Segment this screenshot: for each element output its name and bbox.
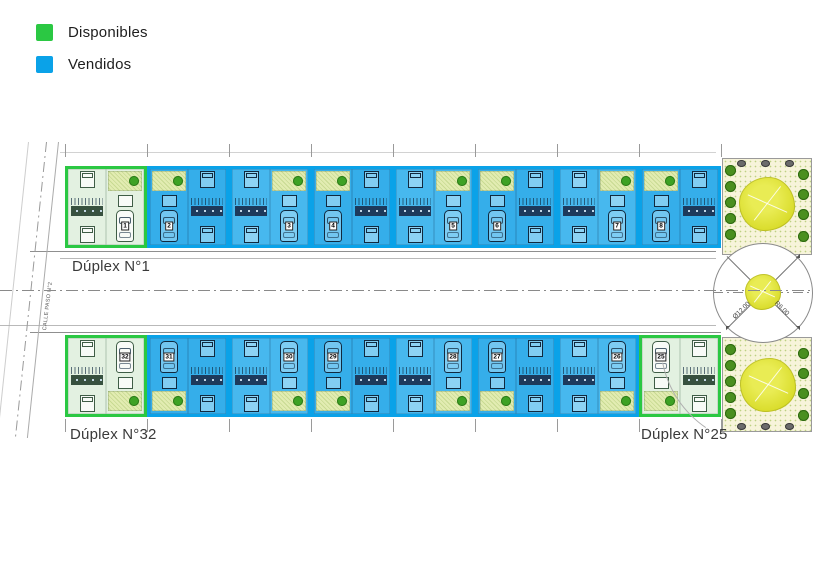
tree-icon bbox=[621, 176, 631, 186]
stairs-icon bbox=[519, 367, 551, 374]
bed-icon bbox=[364, 171, 379, 188]
boundary-tick bbox=[229, 419, 230, 432]
tree-icon bbox=[337, 176, 347, 186]
duplex-unit-6: 6 bbox=[475, 166, 557, 248]
bedroom-cell bbox=[680, 169, 718, 245]
stairs-icon bbox=[191, 198, 223, 205]
bathroom-block bbox=[191, 206, 223, 216]
duplex-unit-3: 3 bbox=[229, 166, 311, 248]
unit-number: 1 bbox=[121, 222, 129, 231]
road-centerline bbox=[0, 290, 813, 291]
tree-icon bbox=[457, 176, 467, 186]
bush-icon bbox=[798, 209, 809, 220]
bed-icon bbox=[200, 395, 215, 412]
bedroom-cell bbox=[188, 338, 226, 414]
patio-area bbox=[316, 391, 350, 411]
unit-number: 25 bbox=[655, 353, 666, 362]
dining-table-icon bbox=[610, 195, 625, 207]
patio-area bbox=[600, 171, 634, 191]
garage-cell: 1 bbox=[106, 169, 144, 245]
bed-icon bbox=[244, 340, 259, 357]
boundary-tick bbox=[65, 144, 66, 157]
bathroom-block bbox=[235, 206, 267, 216]
stairs-icon bbox=[71, 198, 103, 205]
bush-icon bbox=[725, 360, 736, 371]
bathroom-block bbox=[519, 206, 551, 216]
stairs-icon bbox=[235, 367, 267, 374]
duplex-unit-1: 1 bbox=[65, 166, 147, 248]
bedroom-cell bbox=[560, 169, 598, 245]
bathroom-block bbox=[519, 375, 551, 385]
dining-table-icon bbox=[162, 377, 177, 389]
boundary-tick bbox=[147, 144, 148, 157]
survey-line bbox=[60, 258, 716, 259]
boundary-tick bbox=[311, 419, 312, 432]
stairs-icon bbox=[563, 367, 595, 374]
bathroom-block bbox=[399, 375, 431, 385]
bed-icon bbox=[80, 226, 95, 243]
shrub-icon bbox=[761, 160, 770, 167]
car-icon: 6 bbox=[488, 210, 506, 242]
legend-label-available: Disponibles bbox=[68, 24, 148, 41]
car-icon: 4 bbox=[324, 210, 342, 242]
bed-icon bbox=[528, 340, 543, 357]
dining-table-icon bbox=[654, 195, 669, 207]
bathroom-block bbox=[563, 375, 595, 385]
bedroom-cell bbox=[352, 169, 390, 245]
bed-icon bbox=[408, 171, 423, 188]
bed-icon bbox=[692, 171, 707, 188]
car-icon: 3 bbox=[280, 210, 298, 242]
sold-swatch bbox=[36, 56, 53, 73]
garage-cell: 4 bbox=[314, 169, 352, 245]
duplex-unit-28: 28 bbox=[393, 335, 475, 417]
duplex-unit-5: 5 bbox=[393, 166, 475, 248]
legend-label-sold: Vendidos bbox=[68, 56, 131, 73]
unit-number: 8 bbox=[657, 222, 665, 231]
bedroom-cell bbox=[68, 169, 106, 245]
bed-icon bbox=[364, 226, 379, 243]
bed-icon bbox=[80, 395, 95, 412]
bush-icon bbox=[725, 229, 736, 240]
duplex-unit-29: 29 bbox=[311, 335, 393, 417]
patio-area bbox=[152, 391, 186, 411]
patio-area bbox=[436, 391, 470, 411]
unit-number: 30 bbox=[283, 353, 294, 362]
stairs-icon bbox=[71, 367, 103, 374]
garage-cell: 32 bbox=[106, 338, 144, 414]
duplex-1-label: Dúplex N°1 bbox=[72, 258, 150, 275]
unit-number: 27 bbox=[491, 353, 502, 362]
bed-icon bbox=[244, 395, 259, 412]
bed-icon bbox=[408, 340, 423, 357]
duplex-unit-32: 32 bbox=[65, 335, 147, 417]
bush-icon bbox=[725, 344, 736, 355]
patio-area bbox=[316, 171, 350, 191]
bedroom-cell bbox=[516, 169, 554, 245]
garage-cell: 3 bbox=[270, 169, 308, 245]
boundary-tick bbox=[639, 144, 640, 157]
stairs-icon bbox=[683, 198, 715, 205]
bed-icon bbox=[80, 340, 95, 357]
dining-table-icon bbox=[118, 377, 133, 389]
garage-cell: 2 bbox=[150, 169, 188, 245]
boundary-tick bbox=[639, 419, 640, 432]
tree-icon bbox=[173, 396, 183, 406]
bed-icon bbox=[572, 171, 587, 188]
bathroom-block bbox=[563, 206, 595, 216]
unit-number: 28 bbox=[447, 353, 458, 362]
duplex-unit-26: 26 bbox=[557, 335, 639, 417]
car-icon: 28 bbox=[444, 341, 462, 373]
unit-number: 6 bbox=[493, 222, 501, 231]
bush-icon bbox=[798, 348, 809, 359]
bush-icon bbox=[798, 231, 809, 242]
garage-cell: 26 bbox=[598, 338, 636, 414]
bush-icon bbox=[725, 165, 736, 176]
car-icon: 5 bbox=[444, 210, 462, 242]
legend: Disponibles Vendidos bbox=[36, 24, 148, 88]
bush-icon bbox=[725, 376, 736, 387]
bathroom-block bbox=[355, 206, 387, 216]
duplex-25-label: Dúplex N°25 bbox=[641, 426, 728, 443]
bed-icon bbox=[528, 171, 543, 188]
dining-table-icon bbox=[162, 195, 177, 207]
tree-icon bbox=[501, 396, 511, 406]
tree-icon bbox=[337, 396, 347, 406]
boundary-tick bbox=[311, 144, 312, 157]
survey-line bbox=[60, 152, 716, 153]
duplex-unit-7: 7 bbox=[557, 166, 639, 248]
tree-icon bbox=[293, 176, 303, 186]
patio-area bbox=[480, 171, 514, 191]
duplex-unit-27: 27 bbox=[475, 335, 557, 417]
shrub-icon bbox=[737, 423, 746, 430]
shrub-icon bbox=[785, 423, 794, 430]
bedroom-cell bbox=[516, 338, 554, 414]
garage-cell: 6 bbox=[478, 169, 516, 245]
bed-icon bbox=[364, 340, 379, 357]
boundary-tick bbox=[475, 144, 476, 157]
bedroom-cell bbox=[352, 338, 390, 414]
car-icon: 26 bbox=[608, 341, 626, 373]
patio-area bbox=[272, 171, 306, 191]
bathroom-block bbox=[235, 375, 267, 385]
bed-icon bbox=[692, 340, 707, 357]
garage-cell: 27 bbox=[478, 338, 516, 414]
garden-top bbox=[722, 158, 812, 255]
dining-table-icon bbox=[490, 377, 505, 389]
duplex-unit-2: 2 bbox=[147, 166, 229, 248]
bed-icon bbox=[572, 226, 587, 243]
patio-area bbox=[436, 171, 470, 191]
survey-line bbox=[0, 325, 716, 326]
boundary-tick bbox=[393, 144, 394, 157]
bathroom-block bbox=[683, 206, 715, 216]
stairs-icon bbox=[399, 198, 431, 205]
car-icon: 27 bbox=[488, 341, 506, 373]
site-plan-canvas: Disponibles Vendidos CALLE PASO N°2 Ø12. bbox=[0, 0, 814, 576]
patio-area bbox=[272, 391, 306, 411]
boundary-tick bbox=[557, 419, 558, 432]
tree-canopy bbox=[740, 358, 796, 412]
bush-icon bbox=[798, 169, 809, 180]
bush-icon bbox=[725, 181, 736, 192]
shrub-icon bbox=[761, 423, 770, 430]
bed-icon bbox=[408, 395, 423, 412]
stairs-icon bbox=[235, 198, 267, 205]
bed-icon bbox=[200, 171, 215, 188]
bush-icon bbox=[725, 197, 736, 208]
boundary-tick bbox=[557, 144, 558, 157]
tree-icon bbox=[457, 396, 467, 406]
stairs-icon bbox=[563, 198, 595, 205]
dining-table-icon bbox=[118, 195, 133, 207]
bathroom-block bbox=[355, 375, 387, 385]
patio-area bbox=[480, 391, 514, 411]
car-icon: 29 bbox=[324, 341, 342, 373]
bed-icon bbox=[200, 340, 215, 357]
dining-table-icon bbox=[446, 195, 461, 207]
stairs-icon bbox=[191, 367, 223, 374]
stairs-icon bbox=[519, 198, 551, 205]
bedroom-cell bbox=[68, 338, 106, 414]
patio-area bbox=[108, 391, 142, 411]
patio-area bbox=[644, 171, 678, 191]
bedroom-cell bbox=[396, 338, 434, 414]
boundary-tick bbox=[393, 419, 394, 432]
bedroom-cell bbox=[560, 338, 598, 414]
available-swatch bbox=[36, 24, 53, 41]
stairs-icon bbox=[355, 198, 387, 205]
garden-bottom bbox=[722, 337, 812, 432]
bush-icon bbox=[798, 388, 809, 399]
tree-icon bbox=[173, 176, 183, 186]
car-icon: 31 bbox=[160, 341, 178, 373]
garage-cell: 7 bbox=[598, 169, 636, 245]
tree-icon bbox=[621, 396, 631, 406]
legend-item-available: Disponibles bbox=[36, 24, 148, 41]
car-icon: 30 bbox=[280, 341, 298, 373]
unit-number: 2 bbox=[165, 222, 173, 231]
bedroom-cell bbox=[188, 169, 226, 245]
sidewalk-edge-top bbox=[30, 251, 716, 252]
dining-table-icon bbox=[446, 377, 461, 389]
boundary-tick bbox=[721, 144, 722, 157]
bed-icon bbox=[572, 395, 587, 412]
bush-icon bbox=[725, 392, 736, 403]
shrub-icon bbox=[785, 160, 794, 167]
shrub-icon bbox=[737, 160, 746, 167]
unit-number: 7 bbox=[613, 222, 621, 231]
bedroom-cell bbox=[396, 169, 434, 245]
tree-icon bbox=[501, 176, 511, 186]
bathroom-block bbox=[71, 375, 103, 385]
bed-icon bbox=[408, 226, 423, 243]
garage-cell: 5 bbox=[434, 169, 472, 245]
roundabout: Ø12.00 R6.00 bbox=[713, 243, 813, 343]
bed-icon bbox=[528, 226, 543, 243]
bush-icon bbox=[725, 408, 736, 419]
bed-icon bbox=[528, 395, 543, 412]
duplex-unit-30: 30 bbox=[229, 335, 311, 417]
duplex-unit-8: 8 bbox=[639, 166, 721, 248]
car-icon: 1 bbox=[116, 210, 134, 242]
bathroom-block bbox=[399, 206, 431, 216]
bush-icon bbox=[798, 368, 809, 379]
duplex-unit-31: 31 bbox=[147, 335, 229, 417]
unit-number: 32 bbox=[119, 353, 130, 362]
car-icon: 32 bbox=[116, 341, 134, 373]
bedroom-cell bbox=[232, 338, 270, 414]
bed-icon bbox=[244, 226, 259, 243]
unit-number: 26 bbox=[611, 353, 622, 362]
boundary-tick bbox=[65, 419, 66, 432]
patio-area bbox=[152, 171, 186, 191]
tree-icon bbox=[665, 176, 675, 186]
dining-table-icon bbox=[326, 195, 341, 207]
garage-cell: 31 bbox=[150, 338, 188, 414]
duplex-row-top: 12345678 bbox=[65, 166, 721, 248]
unit-number: 5 bbox=[449, 222, 457, 231]
boundary-tick bbox=[475, 419, 476, 432]
dining-table-icon bbox=[282, 377, 297, 389]
duplex-32-label: Dúplex N°32 bbox=[70, 426, 157, 443]
car-icon: 7 bbox=[608, 210, 626, 242]
dining-table-icon bbox=[610, 377, 625, 389]
tree-icon bbox=[129, 396, 139, 406]
dining-table-icon bbox=[326, 377, 341, 389]
patio-area bbox=[600, 391, 634, 411]
bathroom-block bbox=[191, 375, 223, 385]
boundary-tick bbox=[229, 144, 230, 157]
bedroom-cell bbox=[232, 169, 270, 245]
bush-icon bbox=[798, 410, 809, 421]
patio-area bbox=[644, 391, 678, 411]
stairs-icon bbox=[355, 367, 387, 374]
dining-table-icon bbox=[490, 195, 505, 207]
bed-icon bbox=[364, 395, 379, 412]
stairs-icon bbox=[399, 367, 431, 374]
unit-number: 31 bbox=[163, 353, 174, 362]
bed-icon bbox=[572, 340, 587, 357]
tree-icon bbox=[665, 396, 675, 406]
bush-icon bbox=[798, 189, 809, 200]
sidewalk-edge-bottom bbox=[30, 332, 721, 333]
garage-cell: 8 bbox=[642, 169, 680, 245]
bed-icon bbox=[692, 226, 707, 243]
unit-number: 29 bbox=[327, 353, 338, 362]
bathroom-block bbox=[71, 206, 103, 216]
tree-icon bbox=[293, 396, 303, 406]
tree-canopy bbox=[739, 177, 795, 231]
unit-number: 4 bbox=[329, 222, 337, 231]
car-icon: 8 bbox=[652, 210, 670, 242]
legend-item-sold: Vendidos bbox=[36, 56, 148, 73]
garage-cell: 30 bbox=[270, 338, 308, 414]
bed-icon bbox=[244, 171, 259, 188]
unit-number: 3 bbox=[285, 222, 293, 231]
dining-table-icon bbox=[282, 195, 297, 207]
bush-icon bbox=[725, 213, 736, 224]
car-icon: 2 bbox=[160, 210, 178, 242]
duplex-unit-4: 4 bbox=[311, 166, 393, 248]
bed-icon bbox=[200, 226, 215, 243]
garage-cell: 29 bbox=[314, 338, 352, 414]
duplex-row-bottom: 3231302928272625 bbox=[65, 335, 721, 417]
tree-icon bbox=[129, 176, 139, 186]
bed-icon bbox=[80, 171, 95, 188]
patio-area bbox=[108, 171, 142, 191]
garage-cell: 28 bbox=[434, 338, 472, 414]
